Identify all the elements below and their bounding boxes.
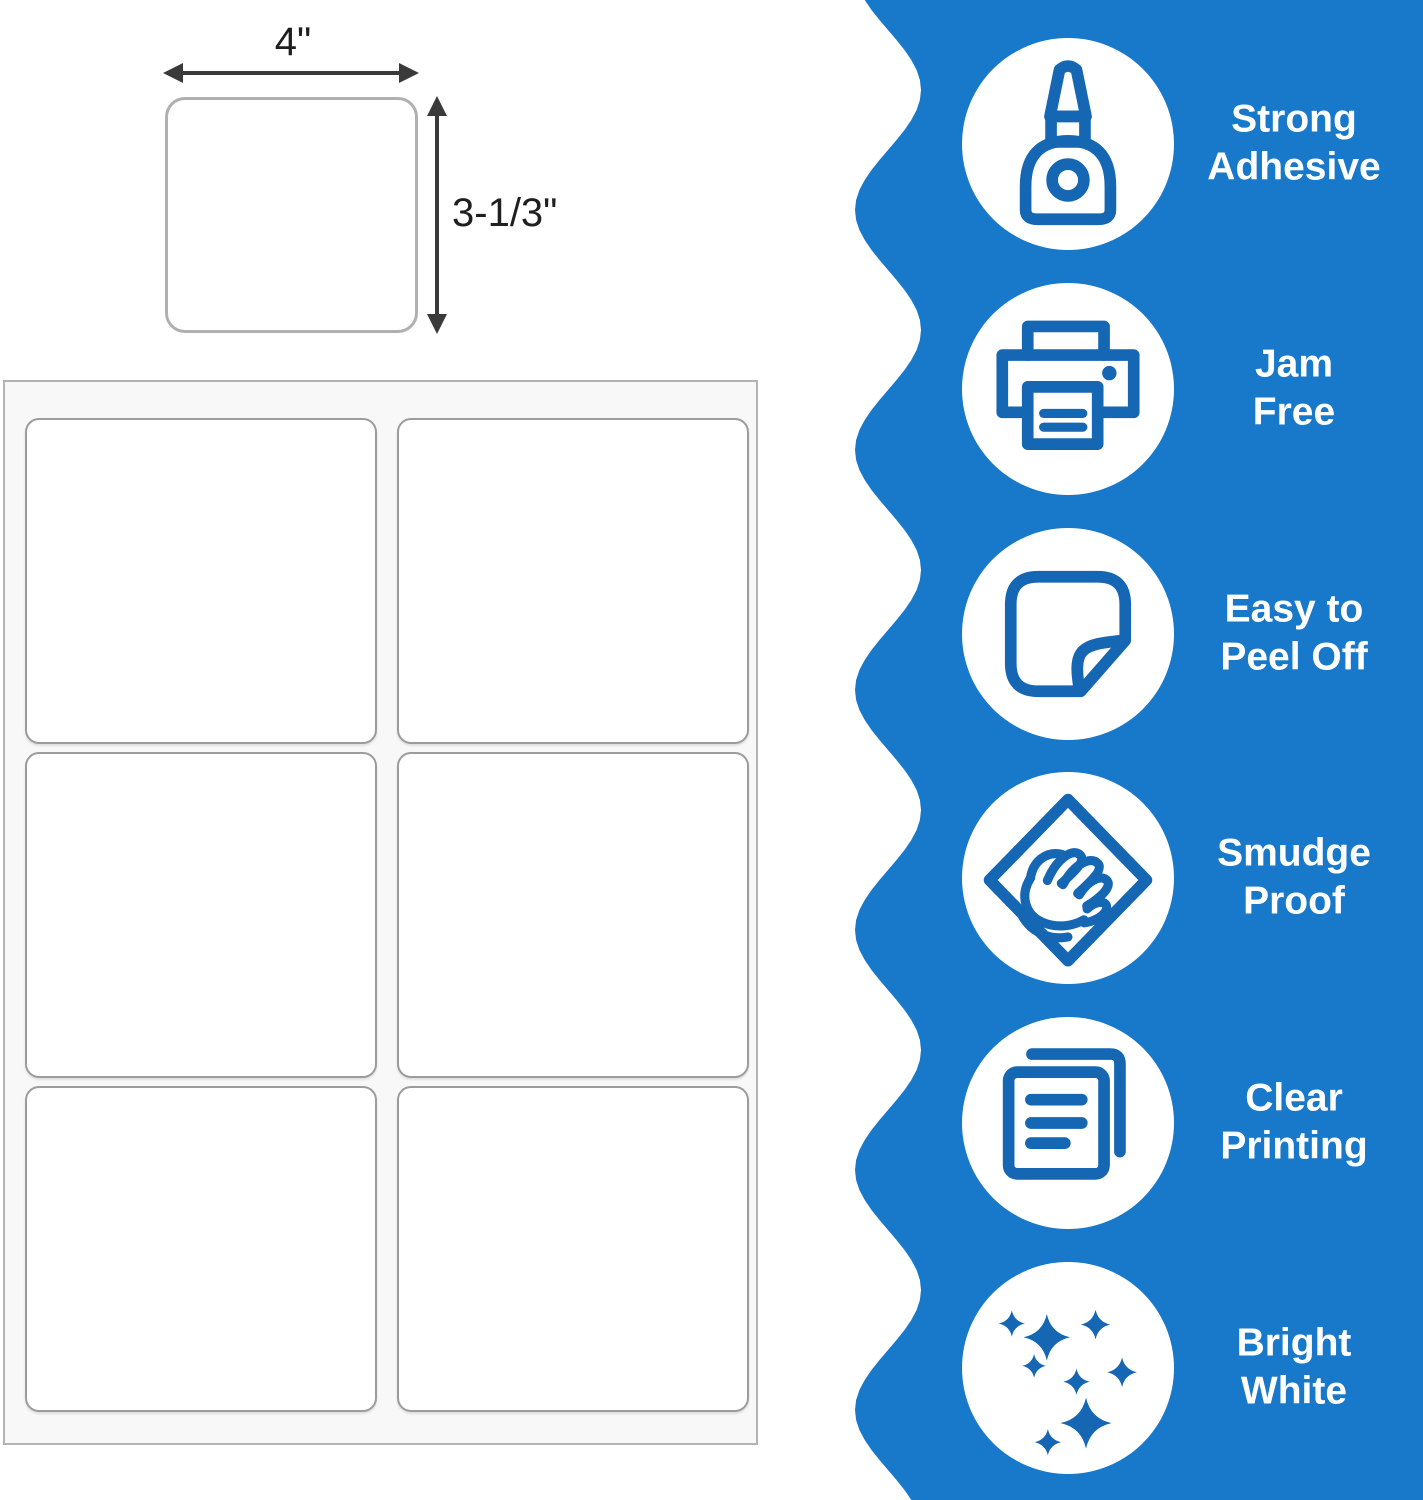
feature-label: Jam Free [1168, 341, 1420, 438]
width-dimension-label: 4" [233, 22, 353, 62]
feature-label-line: Peel Off [1168, 634, 1420, 682]
documents-icon [962, 1017, 1174, 1229]
feature-label: Bright White [1168, 1320, 1420, 1417]
feature-label-line: Clear [1168, 1075, 1420, 1123]
feature-label-line: Free [1168, 389, 1420, 437]
feature-badge [962, 38, 1174, 250]
blank-label [25, 1086, 377, 1412]
peel-sticker-icon [962, 528, 1174, 740]
feature-label-line: Printing [1168, 1123, 1420, 1171]
feature-badge [962, 528, 1174, 740]
feature-badge [962, 1262, 1174, 1474]
blank-label [397, 752, 749, 1078]
feature-label-line: Proof [1168, 878, 1420, 926]
feature-label: Smudge Proof [1168, 830, 1420, 927]
height-dimension-label: 3-1/3" [452, 193, 612, 233]
feature-label-line: Jam [1168, 341, 1420, 389]
blank-label [397, 418, 749, 744]
feature-label-line: Smudge [1168, 830, 1420, 878]
sparkles-icon [962, 1262, 1174, 1474]
printer-icon [962, 283, 1174, 495]
feature-label-line: White [1168, 1368, 1420, 1416]
blank-label [25, 418, 377, 744]
glue-bottle-icon [962, 38, 1174, 250]
feature-label: Strong Adhesive [1168, 96, 1420, 193]
feature-badge [962, 283, 1174, 495]
feature-badge [962, 1017, 1174, 1229]
product-infographic: 4" 3-1/3" Strong Adhesive J [0, 0, 1423, 1500]
blank-label [25, 752, 377, 1078]
blank-label [397, 1086, 749, 1412]
feature-label-line: Strong [1168, 96, 1420, 144]
feature-label: Clear Printing [1168, 1075, 1420, 1172]
height-dimension-arrow [427, 96, 447, 334]
width-dimension-arrow [163, 63, 419, 83]
single-label-diagram [165, 97, 418, 333]
label-sheet [3, 380, 758, 1445]
feature-badge [962, 772, 1174, 984]
feature-label-line: Easy to [1168, 586, 1420, 634]
smudge-hand-icon [962, 772, 1174, 984]
feature-label-line: Bright [1168, 1320, 1420, 1368]
feature-label: Easy to Peel Off [1168, 586, 1420, 683]
feature-label-line: Adhesive [1168, 144, 1420, 192]
